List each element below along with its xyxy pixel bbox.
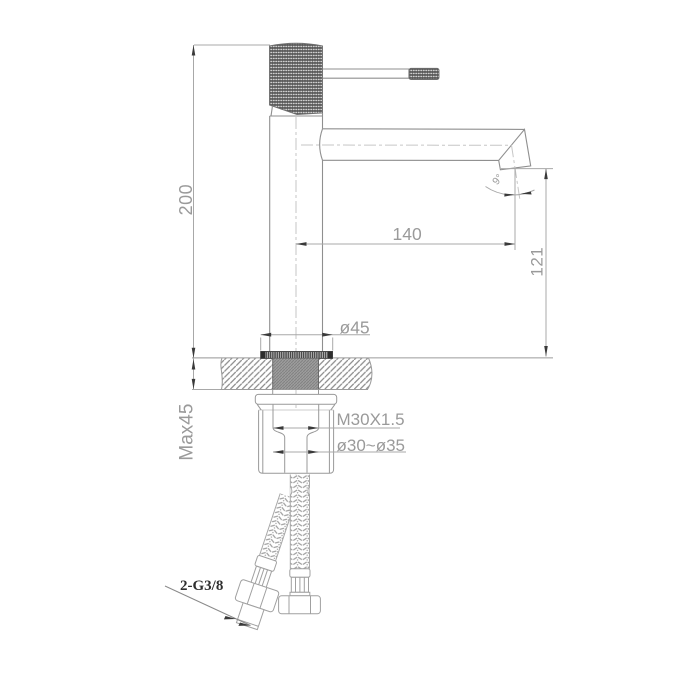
svg-text:M30X1.5: M30X1.5 bbox=[337, 410, 405, 429]
svg-text:9°: 9° bbox=[490, 172, 506, 187]
svg-text:ø30~ø35: ø30~ø35 bbox=[337, 436, 406, 455]
svg-text:121: 121 bbox=[528, 247, 547, 277]
svg-text:2-G3/8: 2-G3/8 bbox=[180, 578, 223, 594]
svg-text:ø45: ø45 bbox=[340, 318, 370, 338]
svg-text:Max45: Max45 bbox=[177, 404, 198, 461]
svg-text:200: 200 bbox=[176, 184, 196, 216]
svg-text:140: 140 bbox=[393, 224, 422, 244]
